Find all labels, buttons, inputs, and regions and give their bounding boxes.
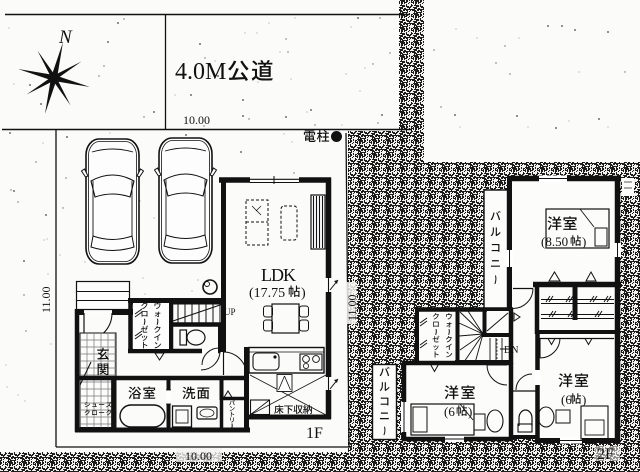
- svg-text:LDK: LDK: [261, 265, 296, 285]
- svg-text:(8.50: (8.50: [541, 234, 568, 249]
- svg-text:(6: (6: [444, 404, 455, 419]
- svg-text:): ): [582, 392, 586, 407]
- svg-text:10.00: 10.00: [185, 449, 212, 463]
- svg-text:DN: DN: [504, 345, 518, 356]
- svg-text:10.00: 10.00: [183, 113, 210, 127]
- svg-text:11.00: 11.00: [39, 286, 53, 313]
- svg-text:1F: 1F: [306, 425, 323, 442]
- svg-text:2F: 2F: [597, 446, 614, 463]
- svg-text:(6: (6: [561, 392, 572, 407]
- svg-text:(17.75: (17.75: [249, 286, 285, 301]
- svg-text:): ): [301, 286, 306, 301]
- svg-text:11.00: 11.00: [345, 294, 359, 321]
- svg-text:4.0M: 4.0M: [175, 59, 226, 85]
- svg-text:): ): [582, 234, 586, 249]
- svg-text:N: N: [58, 27, 73, 48]
